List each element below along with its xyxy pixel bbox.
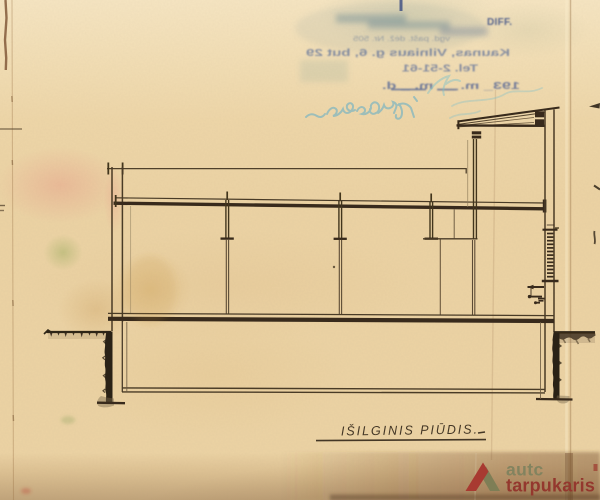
svg-text:vgd. pašt. dėž. Nr. 505: vgd. pašt. dėž. Nr. 505	[353, 34, 450, 43]
svg-text:Kaunas, Vilniaus g. 6, but 29: Kaunas, Vilniaus g. 6, but 29	[305, 48, 510, 59]
svg-text:Tel. 2-51-61: Tel. 2-51-61	[401, 64, 478, 75]
svg-text:tarpukaris: tarpukaris	[506, 476, 595, 496]
svg-text:DIFF.: DIFF.	[487, 17, 512, 28]
svg-text:IŠILGINIS PIŪDIS.: IŠILGINIS PIŪDIS.	[341, 422, 479, 439]
